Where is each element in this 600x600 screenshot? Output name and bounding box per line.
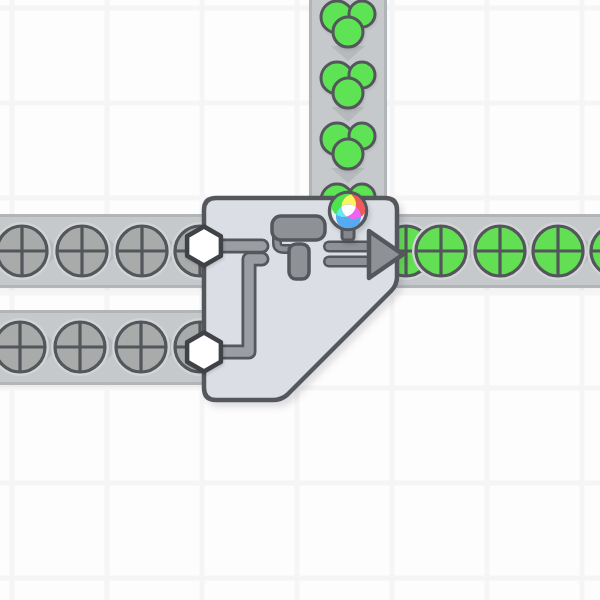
grid-line	[0, 6, 600, 11]
grid-line	[0, 386, 600, 391]
item-circle-uncolored	[113, 222, 171, 280]
grid-line	[580, 0, 585, 600]
game-viewport[interactable]	[0, 0, 600, 600]
grid-line	[390, 0, 395, 600]
grid-line	[485, 0, 490, 600]
item-circle-uncolored	[53, 222, 111, 280]
item-circle-green	[529, 222, 587, 280]
input-connector-hexagon	[187, 333, 221, 372]
grid-line	[10, 0, 15, 600]
belt-edge	[395, 214, 600, 217]
belt-edge	[309, 0, 312, 198]
factory-scene	[0, 0, 600, 600]
grid-line	[0, 481, 600, 486]
belt-edge	[0, 310, 206, 313]
item-circle-green	[471, 222, 529, 280]
belt-edge	[0, 285, 206, 288]
input-connector-hexagon	[187, 227, 221, 266]
belt-edge	[0, 214, 206, 217]
belt-edge	[395, 285, 600, 288]
grid-line	[0, 101, 600, 106]
grid-line	[0, 576, 600, 581]
item-circle-uncolored	[112, 318, 170, 376]
grid-line	[105, 0, 110, 600]
belt-edge	[384, 0, 387, 198]
belt-edge	[0, 382, 206, 385]
item-circle-green	[412, 222, 470, 280]
item-circle-uncolored	[51, 318, 109, 376]
